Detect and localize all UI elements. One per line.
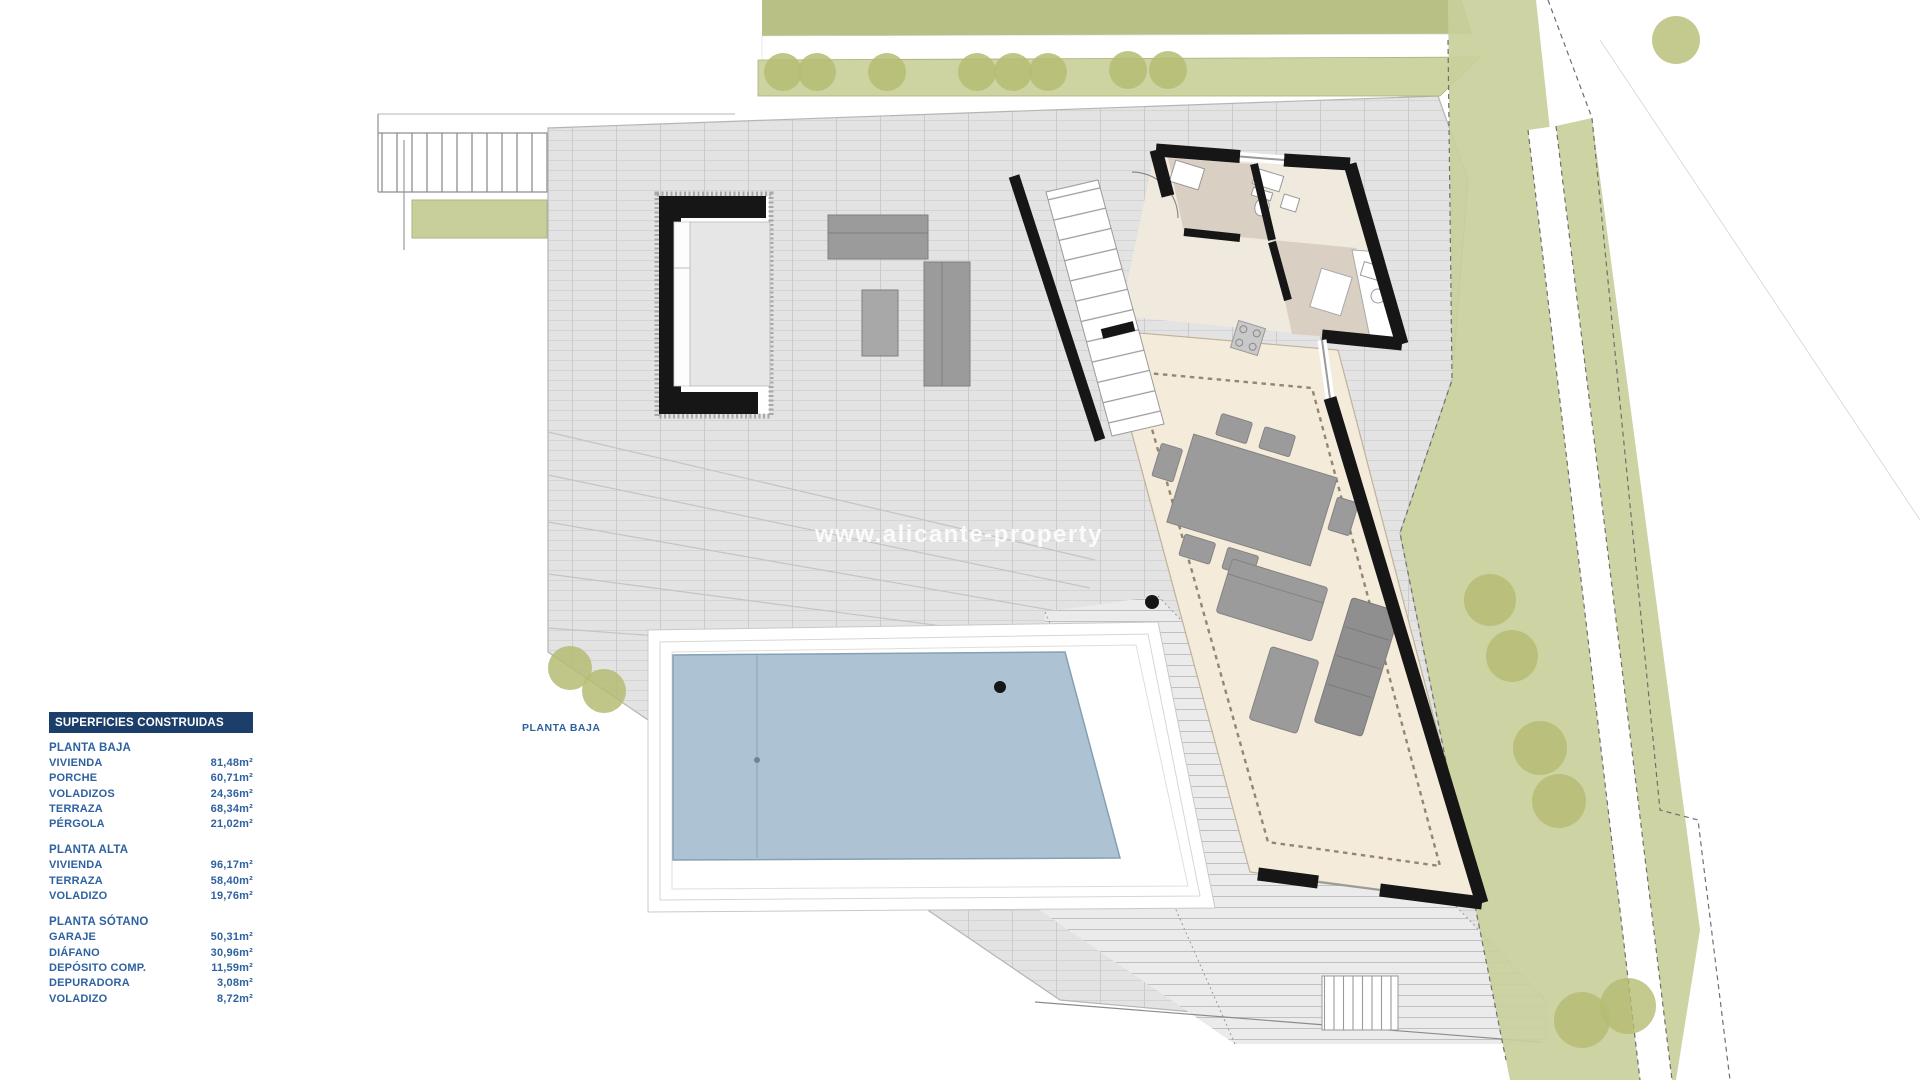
tree-icon — [582, 669, 626, 713]
legend-section-name: PLANTA SÓTANO — [49, 916, 253, 928]
legend-row-label: GARAJE — [49, 930, 96, 945]
tree-icon — [1652, 16, 1700, 64]
legend-row-value: 30,96m² — [211, 946, 253, 961]
porch-room-rug — [690, 222, 770, 386]
planter-strip — [412, 200, 547, 238]
legend-row: PORCHE 60,71m² — [49, 771, 253, 786]
legend-section-rows: VIVIENDA 81,48m² PORCHE 60,71m² VOLADIZO… — [49, 756, 253, 832]
legend-row-value: 11,59m² — [211, 961, 253, 976]
tree-icon — [1149, 51, 1187, 89]
tree-icon — [1513, 721, 1567, 775]
top-trees — [764, 51, 1187, 91]
legend-row-value: 96,17m² — [211, 858, 253, 873]
porch-room — [657, 194, 771, 416]
legend-row-label: VIVIENDA — [49, 858, 103, 873]
legend-row: PÉRGOLA 21,02m² — [49, 817, 253, 832]
legend-section-name: PLANTA ALTA — [49, 844, 253, 856]
top-garden-bands — [758, 0, 1480, 96]
watermark: www.alicante-property — [815, 521, 1115, 549]
legend-row: VOLADIZO 19,76m² — [49, 889, 253, 904]
legend-row-label: DEPÓSITO COMP. — [49, 961, 146, 976]
legend-row-label: VOLADIZOS — [49, 787, 115, 802]
legend-row-value: 24,36m² — [211, 787, 253, 802]
legend-row-value: 68,34m² — [211, 802, 253, 817]
legend-row-label: TERRAZA — [49, 802, 103, 817]
legend-body: PLANTA BAJA VIVIENDA 81,48m² PORCHE 60,7… — [49, 742, 253, 1007]
legend-row-label: VIVIENDA — [49, 756, 103, 771]
hedge-strip-top — [762, 0, 1472, 36]
legend-row: VIVIENDA 96,17m² — [49, 858, 253, 873]
legend-row: VOLADIZO 8,72m² — [49, 992, 253, 1007]
floor-plan-label: PLANTA BAJA — [522, 722, 600, 734]
legend-title: SUPERFICIES CONSTRUIDAS — [49, 712, 253, 733]
tree-icon — [1109, 51, 1147, 89]
legend-row-label: DEPURADORA — [49, 976, 130, 991]
tree-icon — [994, 53, 1032, 91]
legend-row-value: 21,02m² — [211, 817, 253, 832]
tree-icon — [868, 53, 906, 91]
legend-section-rows: VIVIENDA 96,17m² TERRAZA 58,40m² VOLADIZ… — [49, 858, 253, 904]
legend-row-value: 58,40m² — [211, 874, 253, 889]
tree-icon — [1486, 630, 1538, 682]
legend-row-label: VOLADIZO — [49, 889, 107, 904]
legend-section: PLANTA ALTA VIVIENDA 96,17m² TERRAZA 58,… — [49, 844, 253, 904]
legend-row-label: PÉRGOLA — [49, 817, 105, 832]
legend-row-value: 19,76m² — [211, 889, 253, 904]
tree-icon — [1600, 978, 1656, 1034]
legend-row-value: 3,08m² — [217, 976, 253, 991]
legend-row-label: VOLADIZO — [49, 992, 107, 1007]
column — [1145, 595, 1159, 609]
legend-row-label: DIÁFANO — [49, 946, 100, 961]
porch-sofa — [924, 262, 970, 386]
legend-row-value: 81,48m² — [211, 756, 253, 771]
legend-section: PLANTA BAJA VIVIENDA 81,48m² PORCHE 60,7… — [49, 742, 253, 832]
legend-row-value: 60,71m² — [211, 771, 253, 786]
tree-icon — [1029, 53, 1067, 91]
porch-sofa — [828, 215, 928, 259]
legend-row: DIÁFANO 30,96m² — [49, 946, 253, 961]
legend-row: DEPURADORA 3,08m² — [49, 976, 253, 991]
porch-room-side-strip — [674, 222, 690, 386]
legend-row: VOLADIZOS 24,36m² — [49, 787, 253, 802]
tree-icon — [764, 53, 802, 91]
coffee-table — [862, 290, 898, 356]
swimming-pool — [673, 652, 1120, 860]
exterior-stairs — [1322, 976, 1398, 1030]
legend-row-value: 50,31m² — [211, 930, 253, 945]
legend-section: PLANTA SÓTANO GARAJE 50,31m² DIÁFANO 30,… — [49, 916, 253, 1006]
legend-row-value: 8,72m² — [217, 992, 253, 1007]
legend-row: TERRAZA 58,40m² — [49, 874, 253, 889]
legend-row: DEPÓSITO COMP. 11,59m² — [49, 961, 253, 976]
legend-row-label: TERRAZA — [49, 874, 103, 889]
legend-row: VIVIENDA 81,48m² — [49, 756, 253, 771]
legend-section-name: PLANTA BAJA — [49, 742, 253, 754]
pool-drain — [754, 757, 760, 763]
legend-section-rows: GARAJE 50,31m² DIÁFANO 30,96m² DEPÓSITO … — [49, 930, 253, 1006]
legend-row-label: PORCHE — [49, 771, 97, 786]
column — [994, 681, 1006, 693]
tree-icon — [958, 53, 996, 91]
tree-icon — [1464, 574, 1516, 626]
legend-row: TERRAZA 68,34m² — [49, 802, 253, 817]
areas-legend: SUPERFICIES CONSTRUIDAS PLANTA BAJA VIVI… — [49, 712, 253, 1007]
legend-row: GARAJE 50,31m² — [49, 930, 253, 945]
tree-icon — [798, 53, 836, 91]
tree-icon — [1532, 774, 1586, 828]
